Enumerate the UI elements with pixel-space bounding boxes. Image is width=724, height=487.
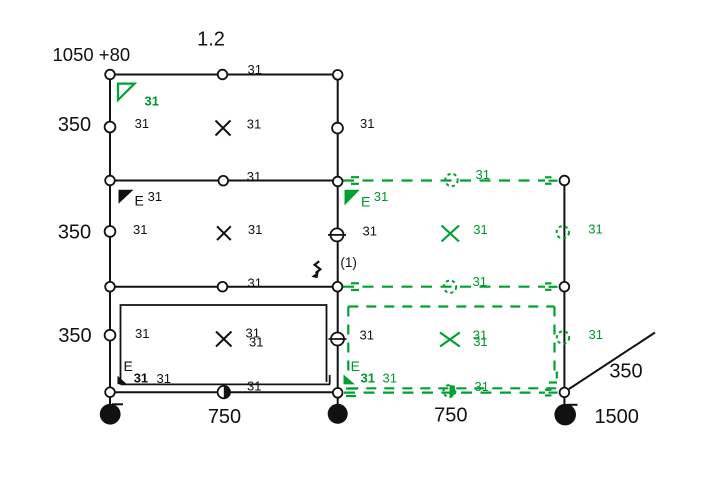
svg-text:31: 31 bbox=[589, 327, 603, 342]
svg-text:31: 31 bbox=[473, 222, 487, 237]
svg-text:31: 31 bbox=[361, 370, 375, 385]
svg-text:31: 31 bbox=[473, 274, 487, 289]
svg-text:31: 31 bbox=[247, 379, 261, 394]
svg-text:31: 31 bbox=[135, 326, 149, 341]
svg-text:750: 750 bbox=[208, 406, 241, 428]
svg-text:31: 31 bbox=[374, 189, 388, 204]
svg-text:31: 31 bbox=[134, 370, 148, 385]
svg-text:31: 31 bbox=[588, 221, 602, 236]
svg-text:31: 31 bbox=[135, 116, 149, 131]
svg-text:1500: 1500 bbox=[594, 406, 639, 428]
svg-text:E: E bbox=[351, 358, 360, 374]
svg-text:31: 31 bbox=[360, 116, 374, 131]
svg-text:31: 31 bbox=[145, 94, 159, 109]
svg-text:350: 350 bbox=[58, 222, 91, 244]
svg-text:1050 +80: 1050 +80 bbox=[53, 44, 131, 65]
svg-text:31: 31 bbox=[148, 189, 162, 204]
svg-text:31: 31 bbox=[248, 222, 262, 237]
svg-text:E: E bbox=[361, 193, 370, 209]
svg-text:31: 31 bbox=[360, 328, 374, 343]
svg-text:750: 750 bbox=[434, 405, 467, 427]
svg-text:31: 31 bbox=[157, 371, 171, 386]
svg-text:350: 350 bbox=[58, 325, 91, 347]
svg-text:31: 31 bbox=[247, 116, 261, 131]
svg-text:31: 31 bbox=[473, 334, 487, 349]
svg-text:E: E bbox=[135, 193, 144, 209]
svg-text:31: 31 bbox=[248, 275, 262, 290]
svg-text:31: 31 bbox=[476, 167, 490, 182]
svg-text:350: 350 bbox=[58, 114, 91, 136]
svg-text:1.2: 1.2 bbox=[197, 29, 225, 51]
svg-text:31: 31 bbox=[383, 370, 397, 385]
svg-text:350: 350 bbox=[609, 361, 642, 383]
svg-text:31: 31 bbox=[475, 379, 489, 394]
svg-text:31: 31 bbox=[248, 62, 262, 77]
svg-text:31: 31 bbox=[133, 222, 147, 237]
svg-text:31: 31 bbox=[363, 224, 377, 239]
svg-text:31: 31 bbox=[247, 169, 261, 184]
svg-text:E: E bbox=[124, 358, 133, 374]
svg-text:(1): (1) bbox=[340, 255, 357, 270]
svg-text:31: 31 bbox=[249, 335, 263, 350]
